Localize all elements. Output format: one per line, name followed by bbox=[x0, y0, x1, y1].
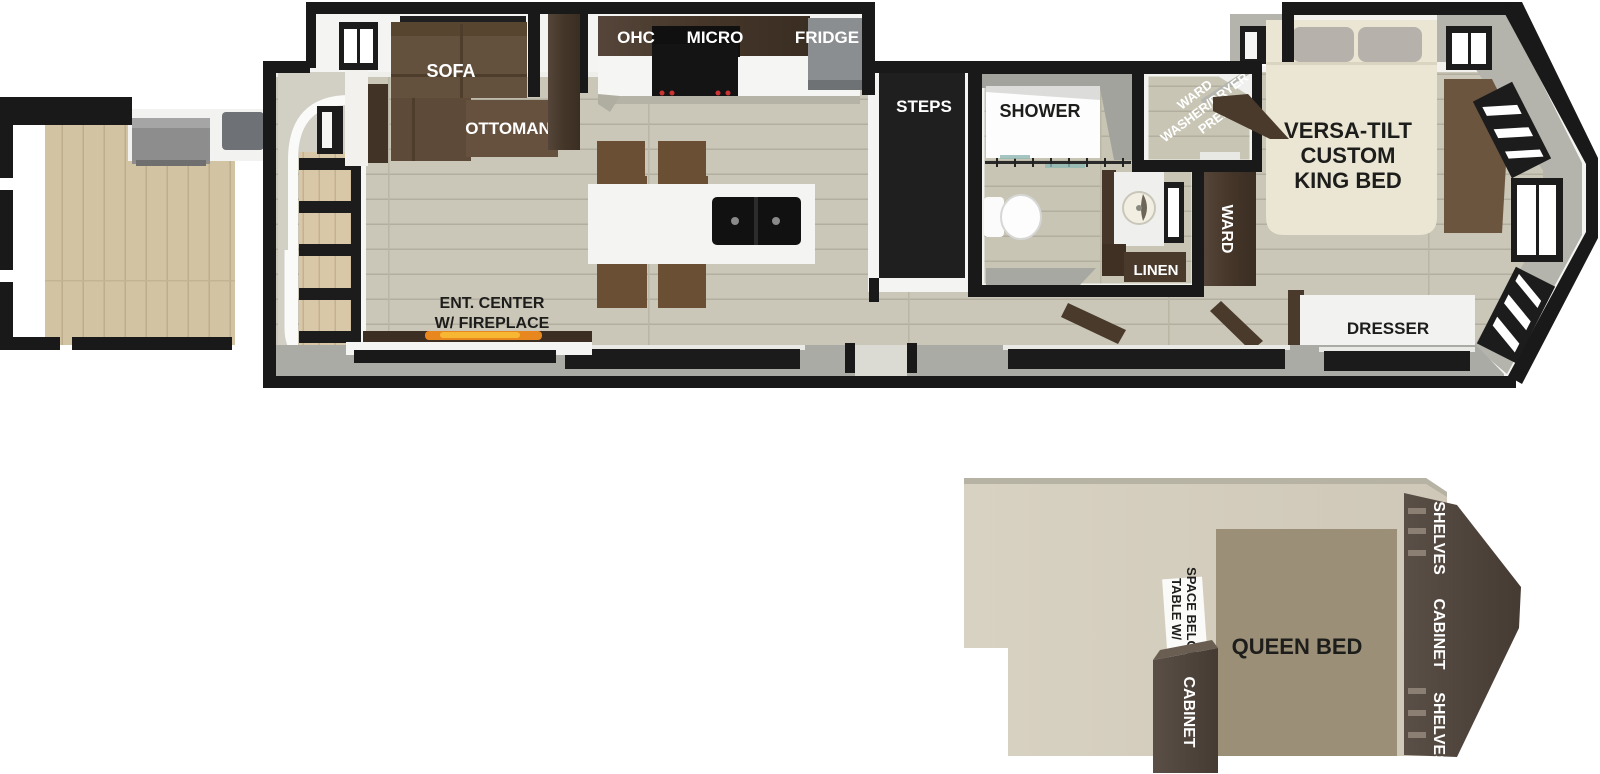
svg-text:OTTOMAN: OTTOMAN bbox=[465, 119, 551, 138]
svg-text:SHELVES: SHELVES bbox=[1430, 692, 1447, 766]
svg-text:VERSA-TILT: VERSA-TILT bbox=[1284, 118, 1412, 143]
svg-text:STEPS: STEPS bbox=[896, 97, 952, 116]
svg-text:SOFA: SOFA bbox=[426, 61, 475, 81]
svg-text:TABLE W/: TABLE W/ bbox=[1169, 578, 1184, 640]
svg-text:MICRO: MICRO bbox=[687, 28, 744, 47]
svg-text:FRIDGE: FRIDGE bbox=[795, 28, 859, 47]
svg-text:LINEN: LINEN bbox=[1134, 262, 1179, 279]
svg-text:CABINET: CABINET bbox=[1430, 598, 1447, 669]
svg-text:CABINET: CABINET bbox=[1180, 676, 1197, 747]
svg-text:W/ FIREPLACE: W/ FIREPLACE bbox=[435, 315, 550, 332]
svg-text:SHELVES: SHELVES bbox=[1430, 501, 1447, 575]
svg-text:DRESSER: DRESSER bbox=[1347, 319, 1429, 338]
svg-text:SHOWER: SHOWER bbox=[1000, 101, 1081, 121]
svg-text:ENT. CENTER: ENT. CENTER bbox=[440, 295, 545, 312]
svg-text:QUEEN BED: QUEEN BED bbox=[1232, 634, 1363, 659]
svg-text:WARD: WARD bbox=[1218, 205, 1235, 254]
svg-text:OHC: OHC bbox=[617, 28, 655, 47]
svg-text:KING BED: KING BED bbox=[1294, 168, 1402, 193]
svg-text:CUSTOM: CUSTOM bbox=[1301, 143, 1396, 168]
